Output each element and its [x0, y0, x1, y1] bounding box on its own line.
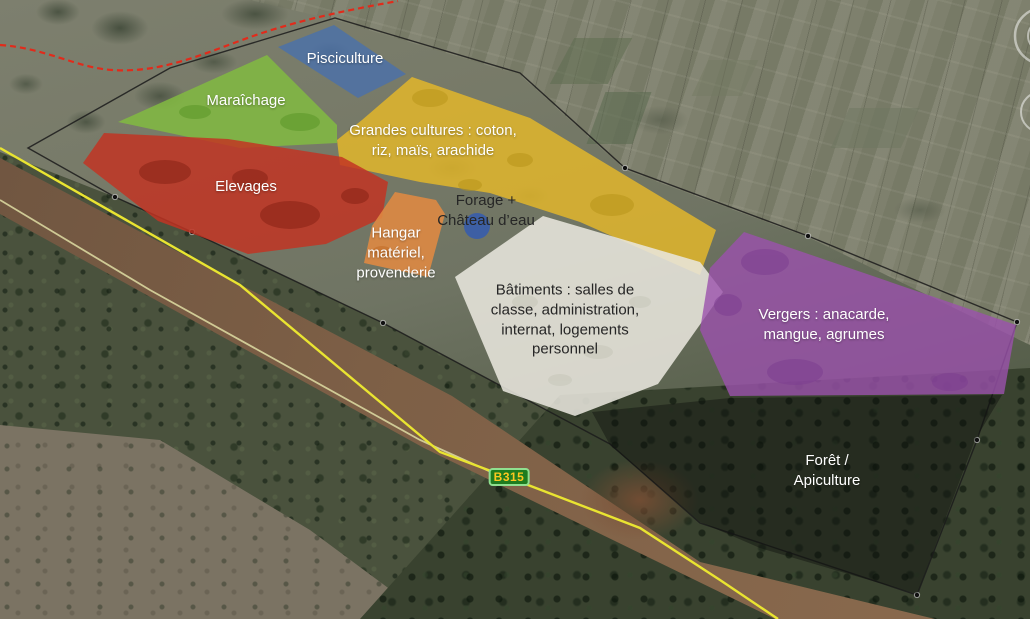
zone-polygon-foret[interactable] — [592, 395, 1002, 594]
navigation-control[interactable] — [1015, 8, 1030, 132]
map-overlay-graphics — [0, 0, 1030, 619]
satellite-map-canvas[interactable]: Pisciculture Maraîchage Grandes cultures… — [0, 0, 1030, 619]
water-point-marker[interactable] — [464, 213, 490, 239]
road-sign-b315: B315 — [489, 468, 530, 486]
